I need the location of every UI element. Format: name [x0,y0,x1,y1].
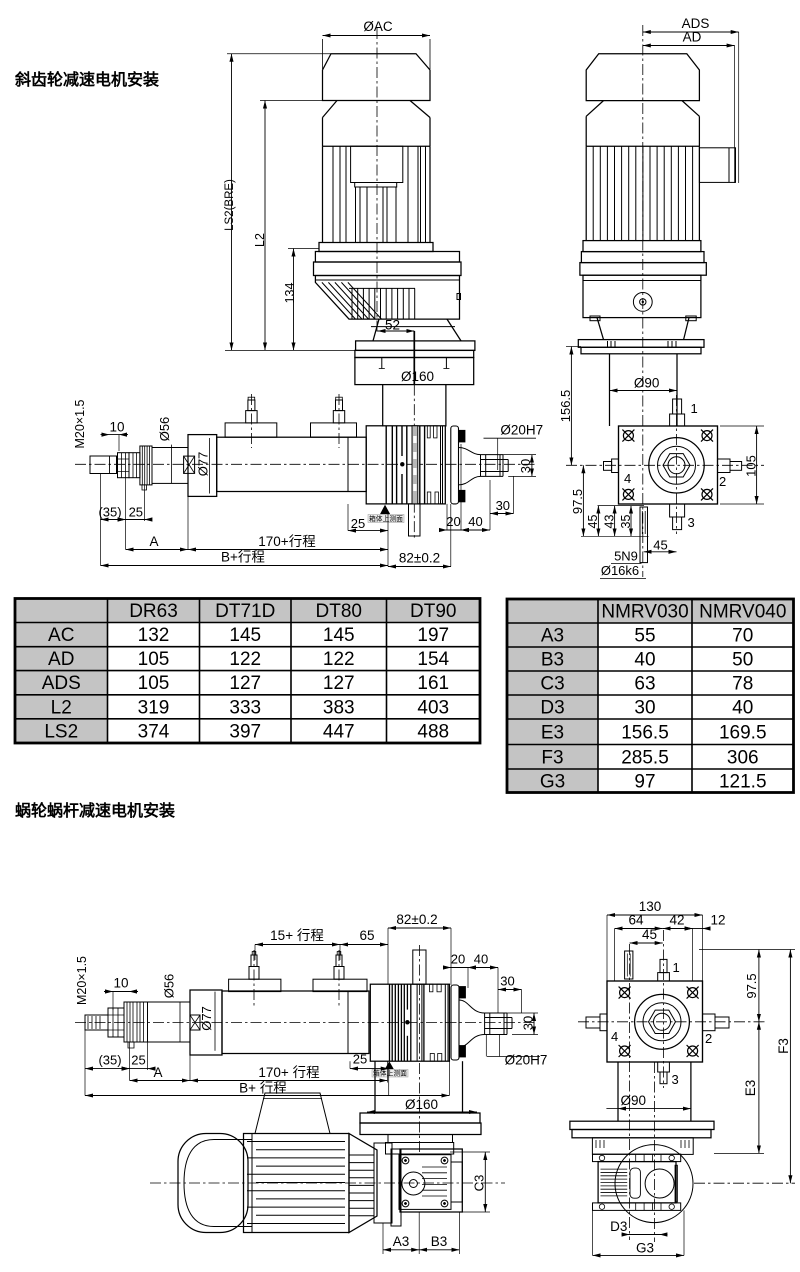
svg-text:52: 52 [385,318,400,333]
svg-text:Ø20H7: Ø20H7 [505,1053,548,1068]
svg-text:Ø77: Ø77 [196,452,211,477]
svg-text:B3: B3 [541,650,564,671]
svg-text:42: 42 [669,913,684,928]
svg-text:Ø90: Ø90 [634,376,660,391]
svg-text:D3: D3 [540,698,564,719]
svg-text:132: 132 [138,625,170,646]
svg-text:145: 145 [323,625,355,646]
svg-text:127: 127 [323,673,355,694]
svg-text:斜齿轮减速电机安装: 斜齿轮减速电机安装 [14,70,159,89]
svg-text:3: 3 [688,515,695,530]
svg-text:25: 25 [129,505,143,520]
svg-text:4: 4 [611,1029,618,1044]
svg-text:(35): (35) [98,1053,121,1068]
svg-text:161: 161 [417,673,449,694]
svg-text:25: 25 [351,516,365,531]
svg-text:A: A [153,1065,162,1080]
svg-text:397: 397 [229,721,261,742]
svg-text:A3: A3 [541,626,564,647]
svg-text:Ø77: Ø77 [199,1006,214,1031]
svg-text:DT80: DT80 [316,601,362,622]
svg-text:NMRV030: NMRV030 [601,602,688,623]
svg-text:L2: L2 [253,233,267,247]
svg-text:78: 78 [732,674,753,695]
svg-text:4: 4 [624,471,631,486]
svg-text:64: 64 [628,913,644,928]
svg-text:319: 319 [138,697,170,718]
svg-text:170+ 行程: 170+ 行程 [258,1065,319,1080]
svg-text:LS2(BRE): LS2(BRE) [224,179,236,231]
svg-text:Ø160: Ø160 [405,1097,438,1112]
svg-text:25: 25 [353,1052,367,1067]
svg-text:B+行程: B+行程 [221,550,265,565]
svg-text:82±0.2: 82±0.2 [396,912,437,927]
svg-text:30: 30 [518,459,533,473]
svg-text:蜗轮蜗杆减速电机安装: 蜗轮蜗杆减速电机安装 [15,801,175,820]
svg-text:45: 45 [653,537,667,552]
svg-text:2: 2 [705,1031,712,1046]
svg-text:G3: G3 [540,771,565,792]
svg-text:DT71D: DT71D [215,601,275,622]
svg-text:97.5: 97.5 [744,973,759,998]
svg-text:Ø20H7: Ø20H7 [500,423,543,438]
svg-text:C3: C3 [472,1175,487,1192]
svg-text:105: 105 [138,673,170,694]
svg-text:374: 374 [138,721,170,742]
svg-text:3: 3 [672,1072,679,1087]
svg-text:30: 30 [521,1016,536,1030]
svg-text:70: 70 [732,626,753,647]
svg-text:127: 127 [229,673,261,694]
svg-text:M20×1.5: M20×1.5 [73,399,87,448]
svg-text:F3: F3 [541,747,563,768]
svg-text:Ø56: Ø56 [162,974,177,999]
svg-text:63: 63 [634,674,655,695]
svg-text:285.5: 285.5 [621,747,669,768]
svg-text:156.5: 156.5 [621,722,669,743]
svg-text:2: 2 [719,474,726,489]
svg-text:197: 197 [417,625,449,646]
svg-text:NMRV040: NMRV040 [699,602,786,623]
svg-text:30: 30 [634,698,655,719]
svg-text:15+ 行程: 15+ 行程 [270,928,324,943]
svg-text:20: 20 [446,514,460,529]
svg-text:ØAC: ØAC [363,19,393,34]
svg-text:169.5: 169.5 [719,722,767,743]
svg-text:A3: A3 [393,1234,410,1249]
svg-text:306: 306 [727,747,759,768]
svg-text:154: 154 [417,649,449,670]
svg-text:45: 45 [586,515,600,529]
svg-text:403: 403 [417,697,449,718]
svg-text:Ø56: Ø56 [157,417,172,442]
svg-text:145: 145 [229,625,261,646]
svg-text:10: 10 [113,976,128,991]
svg-text:97: 97 [634,771,655,792]
svg-text:55: 55 [634,626,655,647]
svg-text:E3: E3 [743,1080,758,1097]
svg-text:134: 134 [283,283,297,304]
svg-text:B3: B3 [431,1234,448,1249]
svg-text:箱体上测面: 箱体上测面 [373,1068,407,1077]
svg-text:30: 30 [496,498,510,513]
svg-text:488: 488 [417,721,449,742]
svg-text:97.5: 97.5 [570,489,585,514]
svg-text:12: 12 [710,913,725,928]
svg-text:1: 1 [673,960,680,975]
svg-text:箱体上测面: 箱体上测面 [369,514,403,523]
svg-text:1: 1 [691,401,698,416]
svg-text:35: 35 [619,515,633,529]
svg-text:Ø160: Ø160 [401,369,434,384]
svg-text:DR63: DR63 [129,601,178,622]
svg-text:AD: AD [683,30,702,45]
svg-text:45: 45 [642,927,657,942]
svg-text:G3: G3 [636,1241,654,1256]
svg-text:383: 383 [323,697,355,718]
svg-text:40: 40 [474,952,488,967]
svg-text:447: 447 [323,721,355,742]
svg-text:F3: F3 [776,1038,791,1054]
svg-text:AC: AC [48,625,74,646]
svg-text:AD: AD [48,649,74,670]
svg-text:10: 10 [109,420,124,435]
svg-text:43: 43 [603,515,617,529]
svg-text:122: 122 [323,649,355,670]
svg-text:A: A [149,534,158,549]
svg-text:170+行程: 170+行程 [258,534,315,549]
svg-text:82±0.2: 82±0.2 [399,551,440,566]
svg-text:105: 105 [744,455,759,477]
svg-text:25: 25 [131,1053,145,1068]
svg-text:5N9: 5N9 [614,549,638,564]
svg-text:D3: D3 [610,1219,627,1234]
svg-text:30: 30 [500,974,514,989]
svg-text:156.5: 156.5 [558,390,573,423]
svg-text:122: 122 [229,649,261,670]
svg-text:333: 333 [229,697,261,718]
svg-text:20: 20 [451,952,465,967]
svg-text:105: 105 [138,649,170,670]
svg-text:121.5: 121.5 [719,771,767,792]
svg-text:(35): (35) [98,505,121,520]
svg-text:DT90: DT90 [410,601,456,622]
svg-text:40: 40 [634,650,655,671]
svg-text:40: 40 [732,698,753,719]
svg-text:E3: E3 [541,722,564,743]
svg-text:ADS: ADS [42,673,81,694]
svg-text:LS2: LS2 [44,721,78,742]
svg-text:L2: L2 [51,697,72,718]
svg-text:40: 40 [468,514,482,529]
svg-text:Ø16k6: Ø16k6 [601,563,639,578]
svg-text:50: 50 [732,650,753,671]
svg-text:65: 65 [359,928,374,943]
svg-text:Ø90: Ø90 [621,1093,647,1108]
svg-text:M20×1.5: M20×1.5 [75,956,89,1005]
svg-text:C3: C3 [540,674,564,695]
